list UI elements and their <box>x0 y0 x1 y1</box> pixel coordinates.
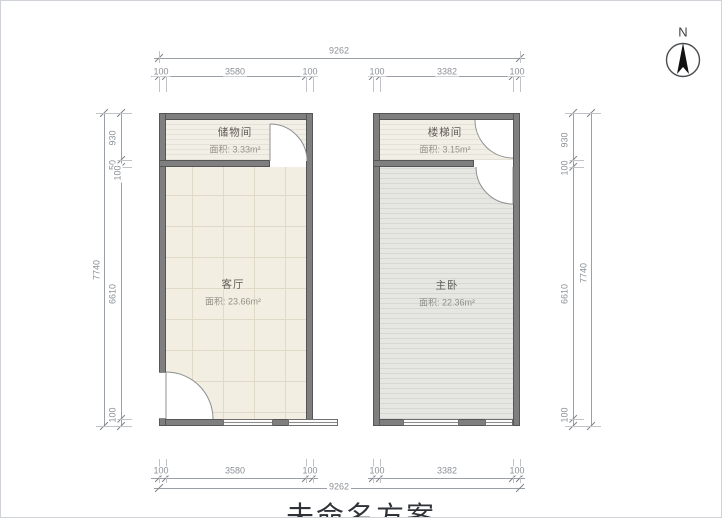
dim-label: 100 <box>300 467 319 476</box>
dim-label-right-overall: 7740 <box>580 261 589 285</box>
door-swing-arcs <box>1 1 722 518</box>
dim-label: 3580 <box>223 68 247 77</box>
dim-label: 930 <box>109 128 118 147</box>
dim-label: 100 <box>561 158 570 177</box>
dim-label: 100 <box>151 68 170 77</box>
stair-door-swing-area <box>475 120 513 158</box>
dim-label: 100 <box>151 467 170 476</box>
dim-label: 100 <box>114 163 123 182</box>
room-living-name: 客厅 <box>205 277 261 292</box>
dim-label: 3382 <box>435 68 459 77</box>
room-storage-area: 面积: 3.33m² <box>209 143 260 156</box>
dim-label-bottom-overall: 9262 <box>327 483 351 492</box>
room-stair-area: 面积: 3.15m² <box>419 143 470 156</box>
room-master-area: 面积: 22.36m² <box>419 296 475 309</box>
dim-label: 6610 <box>109 282 118 306</box>
dim-label: 100 <box>367 68 386 77</box>
north-arrow-icon <box>661 38 705 82</box>
dim-label: 3580 <box>223 467 247 476</box>
dim-label-top-overall: 9262 <box>327 47 351 56</box>
dim-label: 6610 <box>561 282 570 306</box>
room-storage-name: 储物间 <box>209 125 260 140</box>
master-door-swing-area <box>476 167 513 204</box>
dim-label: 930 <box>561 130 570 149</box>
room-label-stair: 楼梯间 面积: 3.15m² <box>419 125 470 156</box>
dim-label: 3382 <box>435 467 459 476</box>
plan-title: 未命名方案 <box>286 495 436 518</box>
room-master-name: 主卧 <box>419 278 475 293</box>
room-label-storage: 储物间 面积: 3.33m² <box>209 125 260 156</box>
entry-door-swing-area <box>166 372 213 419</box>
storage-door-swing-area <box>270 124 307 161</box>
floorplan-canvas: 9262 100 3580 100 100 3382 100 100 3580 … <box>0 0 722 518</box>
room-label-master: 主卧 面积: 22.36m² <box>419 278 475 309</box>
room-stair-name: 楼梯间 <box>419 125 470 140</box>
dim-label: 100 <box>109 405 118 424</box>
dim-label-left-overall: 7740 <box>93 258 102 282</box>
dim-label: 100 <box>507 467 526 476</box>
dim-label: 100 <box>367 467 386 476</box>
room-living-area: 面积: 23.66m² <box>205 295 261 308</box>
dim-label: 100 <box>300 68 319 77</box>
dim-label: 100 <box>507 68 526 77</box>
room-label-living: 客厅 面积: 23.66m² <box>205 277 261 308</box>
dim-label: 100 <box>561 405 570 424</box>
